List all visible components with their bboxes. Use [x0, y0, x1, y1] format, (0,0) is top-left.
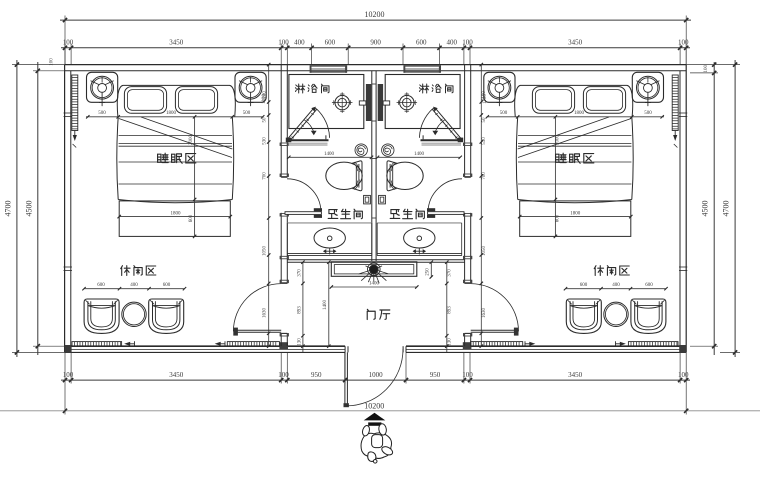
svg-text:250: 250: [426, 268, 431, 276]
svg-text:1000: 1000: [369, 371, 384, 379]
svg-text:1800: 1800: [171, 211, 182, 216]
svg-text:893: 893: [297, 306, 302, 314]
svg-text:100: 100: [278, 371, 289, 379]
svg-text:1100: 1100: [262, 91, 267, 101]
svg-text:1400: 1400: [323, 300, 328, 311]
svg-text:600: 600: [416, 38, 427, 46]
svg-text:50: 50: [262, 117, 267, 123]
svg-text:3450: 3450: [568, 38, 583, 46]
svg-text:400: 400: [612, 283, 620, 288]
svg-text:100: 100: [63, 371, 74, 379]
svg-text:1050: 1050: [262, 246, 267, 257]
svg-text:370: 370: [447, 269, 452, 277]
svg-text:10200: 10200: [364, 401, 384, 410]
svg-text:3450: 3450: [169, 38, 184, 46]
svg-text:1100: 1100: [482, 91, 487, 101]
svg-text:600: 600: [163, 283, 171, 288]
svg-text:600: 600: [645, 283, 653, 288]
svg-text:100: 100: [462, 38, 473, 46]
svg-text:500: 500: [644, 111, 652, 116]
svg-text:4500: 4500: [701, 201, 710, 217]
svg-text:400: 400: [446, 38, 457, 46]
svg-text:100: 100: [63, 38, 74, 46]
svg-text:100: 100: [462, 371, 473, 379]
svg-text:600: 600: [97, 283, 105, 288]
svg-text:1400: 1400: [369, 282, 380, 287]
svg-text:100: 100: [678, 371, 689, 379]
svg-text:50: 50: [482, 117, 487, 123]
svg-text:370: 370: [297, 269, 302, 277]
svg-text:400: 400: [294, 38, 305, 46]
svg-text:900: 900: [370, 38, 381, 46]
svg-text:4500: 4500: [25, 201, 34, 217]
svg-text:3450: 3450: [568, 371, 583, 379]
svg-text:500: 500: [243, 111, 251, 116]
svg-text:700: 700: [262, 172, 267, 180]
svg-text:600: 600: [555, 214, 560, 222]
svg-text:893: 893: [447, 306, 452, 314]
svg-text:100: 100: [678, 38, 689, 46]
svg-text:530: 530: [482, 137, 487, 145]
svg-text:2000: 2000: [189, 135, 194, 146]
svg-text:1050: 1050: [482, 246, 487, 257]
svg-text:1800: 1800: [570, 211, 581, 216]
svg-text:3450: 3450: [169, 371, 184, 379]
svg-text:1800: 1800: [166, 111, 177, 116]
svg-text:530: 530: [262, 137, 267, 145]
svg-text:10200: 10200: [365, 10, 385, 19]
svg-text:950: 950: [430, 371, 441, 379]
svg-text:500: 500: [98, 111, 106, 116]
svg-text:400: 400: [130, 283, 138, 288]
svg-text:130: 130: [297, 338, 302, 346]
svg-text:1800: 1800: [574, 111, 585, 116]
svg-text:4700: 4700: [722, 201, 731, 217]
svg-text:500: 500: [500, 111, 508, 116]
svg-text:1630: 1630: [262, 308, 267, 319]
svg-text:600: 600: [325, 38, 336, 46]
svg-text:130: 130: [447, 338, 452, 346]
svg-text:100: 100: [704, 65, 709, 73]
svg-text:100: 100: [278, 38, 289, 46]
svg-text:1400: 1400: [414, 152, 425, 157]
svg-text:100: 100: [50, 58, 55, 66]
svg-text:950: 950: [311, 371, 322, 379]
svg-text:1400: 1400: [324, 152, 335, 157]
svg-text:700: 700: [482, 172, 487, 180]
svg-text:600: 600: [189, 214, 194, 222]
svg-text:2000: 2000: [555, 135, 560, 146]
svg-text:600: 600: [580, 283, 588, 288]
svg-text:4700: 4700: [4, 201, 13, 217]
svg-text:1630: 1630: [482, 308, 487, 319]
